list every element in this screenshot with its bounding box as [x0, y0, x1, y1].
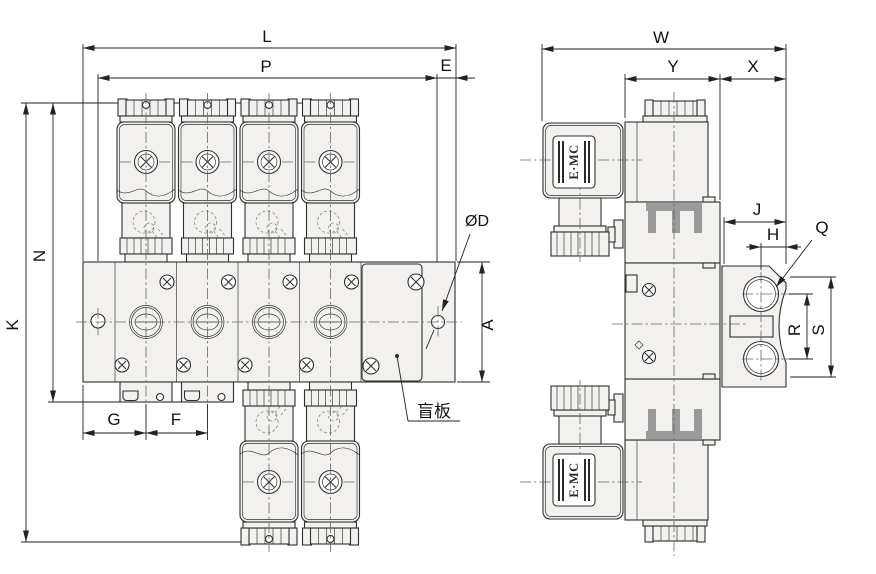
dim-label-g: G: [107, 410, 120, 429]
dim-label-w: W: [653, 28, 669, 47]
port-block: [722, 266, 790, 387]
dim-label-p: P: [260, 57, 271, 76]
dim-label-hole-diameter: ØD: [465, 213, 489, 230]
dim-label-y: Y: [667, 57, 678, 76]
valve-manifold-drawing: L P E K N G F A ØD 盲板: [0, 0, 876, 574]
dim-label-a: A: [478, 319, 497, 331]
dim-label-s: S: [809, 324, 828, 335]
dim-label-x: X: [747, 57, 758, 76]
dim-label-k: K: [3, 319, 22, 331]
dim-label-q: Q: [815, 218, 828, 237]
dim-label-j: J: [753, 200, 762, 219]
side-valve-top: [520, 100, 720, 263]
dim-label-e: E: [440, 56, 451, 75]
technical-drawing: L P E K N G F A ØD 盲板: [0, 0, 876, 574]
dim-label-r: R: [785, 324, 804, 336]
manifold-section: [625, 263, 720, 379]
dim-label-h: H: [767, 225, 779, 244]
side-valve-bottom: [520, 379, 720, 542]
brand-logo-top: E·MC: [567, 144, 581, 179]
dim-label-n: N: [30, 250, 49, 262]
front-view: L P E K N G F A ØD 盲板: [3, 27, 497, 552]
dim-label-f: F: [171, 410, 181, 429]
blind-plate-label: 盲板: [417, 402, 451, 421]
dim-label-l: L: [262, 27, 271, 46]
blind-plate: [362, 264, 424, 381]
brand-logo-bottom: E·MC: [567, 462, 581, 497]
side-view: E·MC E·MC: [520, 28, 836, 556]
